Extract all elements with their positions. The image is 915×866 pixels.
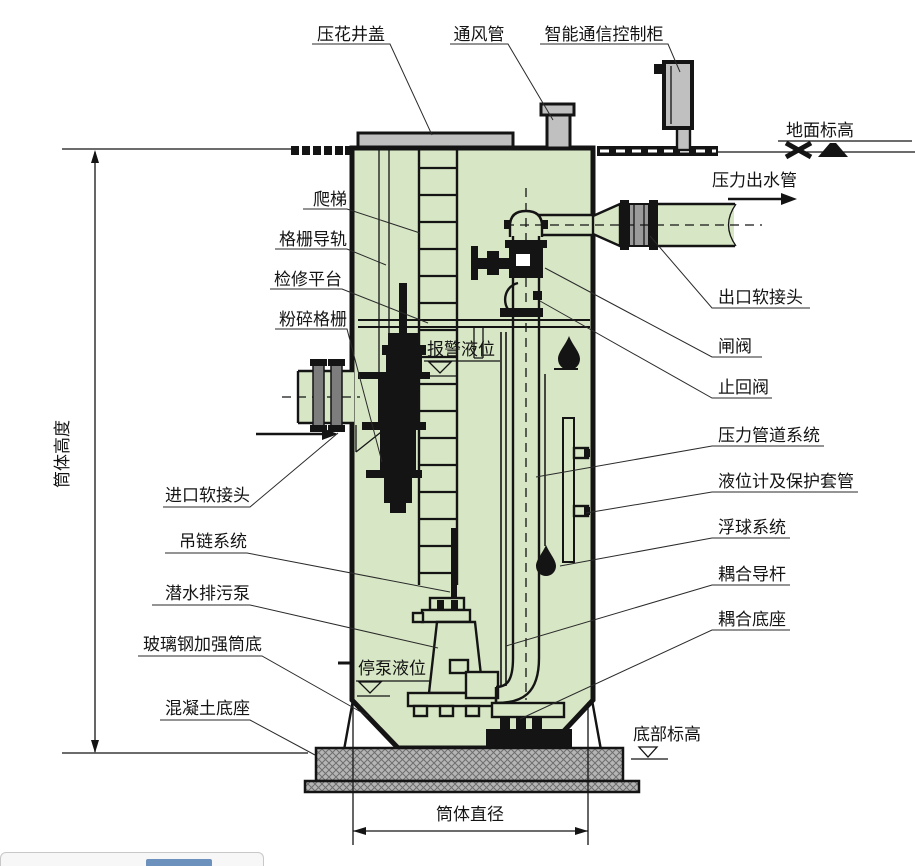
grille-guide-rail-label: 格栅导轨 — [279, 230, 347, 250]
concrete-base — [305, 748, 639, 792]
artifact-blue-fragment — [146, 859, 212, 866]
inlet-flexible-joint-label: 进口软接头 — [165, 486, 250, 506]
pressure-outlet-pipe-label: 压力出水管 — [712, 171, 797, 191]
check-valve-label: 止回阀 — [718, 378, 769, 398]
chain-hoist — [451, 528, 457, 600]
label-vent-pipe: 通风管 — [450, 25, 553, 120]
label-manhole-cover: 压花井盖 — [312, 25, 432, 135]
label-inlet-flexible-joint: 进口软接头 — [163, 433, 338, 507]
ground-hatch-right — [597, 146, 718, 156]
alarm-level-label: 报警液位 — [427, 340, 495, 360]
stop-pump-level-label: 停泵液位 — [358, 659, 426, 679]
frp-bottom-label: 玻璃钢加强筒底 — [143, 635, 262, 655]
inlet-pipe — [256, 359, 360, 440]
height-dimension: 筒体高度 — [53, 150, 308, 753]
service-platform-label: 检修平台 — [274, 270, 342, 290]
coupling-guide-rod-label: 耦合导杆 — [718, 565, 786, 585]
control-cabinet — [654, 62, 692, 150]
gate-valve-label: 闸阀 — [718, 337, 752, 357]
manhole-cover-label: 压花井盖 — [317, 25, 385, 45]
crushing-grille-label: 粉碎格栅 — [279, 310, 347, 330]
chain-hoist-label: 吊链系统 — [179, 532, 247, 552]
vent-pipe — [541, 104, 574, 148]
coupling-base-label: 耦合底座 — [718, 610, 786, 630]
manhole-cover — [358, 133, 513, 147]
bottom-elevation-marker: 底部标高 — [631, 725, 701, 759]
ground-elevation-label: 地面标高 — [786, 121, 854, 141]
float-system-label: 浮球系统 — [718, 518, 786, 538]
label-level-gauge: 液位计及保护套管 — [586, 472, 858, 513]
pressure-piping-label: 压力管道系统 — [718, 426, 820, 446]
outlet-flexible-joint-label: 出口软接头 — [718, 288, 803, 308]
tank-height-label: 筒体高度 — [53, 420, 73, 488]
ladder-label: 爬梯 — [313, 190, 347, 210]
diagram-canvas: 筒体高度 — [0, 0, 915, 866]
inflow-arrow — [256, 428, 338, 440]
outflow-arrow: 压力出水管 — [712, 171, 797, 205]
pump-station-diagram: 筒体高度 — [0, 0, 915, 866]
control-cabinet-label: 智能通信控制柜 — [545, 25, 664, 45]
concrete-base-label: 混凝土底座 — [165, 699, 250, 719]
submersible-pump-label: 潜水排污泵 — [165, 584, 250, 604]
level-gauge-label: 液位计及保护套管 — [718, 472, 854, 492]
ground-hatch-left — [291, 146, 352, 155]
tank-diameter-label: 筒体直径 — [436, 805, 504, 825]
bottom-elevation-label: 底部标高 — [633, 725, 701, 745]
bottom-left-artifact — [0, 852, 264, 866]
ground-elevation-marker — [786, 143, 848, 157]
vent-pipe-label: 通风管 — [454, 25, 505, 45]
label-concrete-base: 混凝土底座 — [160, 699, 315, 755]
